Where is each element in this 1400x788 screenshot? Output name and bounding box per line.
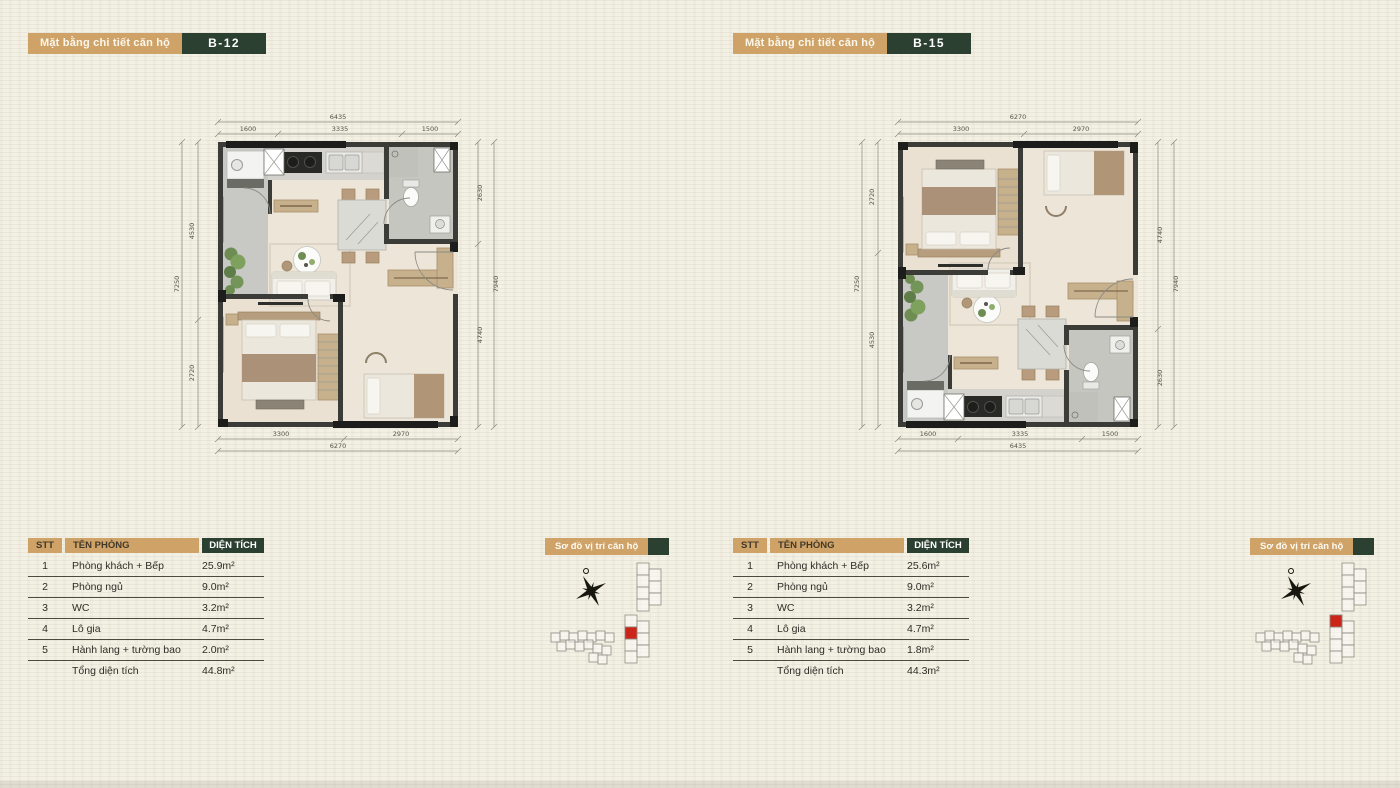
table-row: 1Phòng khách + Bếp25.6m²: [733, 556, 969, 577]
dim-label: 7940: [492, 276, 500, 293]
brochure-page: Mặt bằng chi tiết căn hộ B-12 6435 1600 …: [0, 0, 1400, 788]
dim-label: 6435: [330, 113, 347, 121]
unit-badge: B-15: [887, 33, 971, 54]
dim-label: 2720: [188, 365, 196, 382]
table-total-row: Tổng diện tích44.8m²: [28, 661, 264, 681]
dim-label: 1500: [1102, 430, 1119, 438]
dim-label: 2970: [1073, 125, 1090, 133]
col-room: TÊN PHÒNG: [65, 538, 199, 553]
panel-title: Mặt bằng chi tiết căn hộ: [28, 33, 182, 54]
page-bottom-shade: [0, 781, 1400, 788]
site-header-b12: Sơ đồ vị trí căn hộ: [545, 538, 669, 555]
panel-header-b15: Mặt bằng chi tiết căn hộ B-15: [733, 33, 971, 54]
site-title: Sơ đồ vị trí căn hộ: [545, 538, 648, 555]
dim-label: 6435: [1010, 442, 1027, 450]
dim-label: 6270: [1010, 113, 1027, 121]
table-row: 2Phòng ngủ9.0m²: [28, 577, 264, 598]
dim-label: 7250: [853, 276, 861, 293]
dim-label: 3300: [273, 430, 290, 438]
dim-label: 3335: [332, 125, 349, 133]
table-header: STT TÊN PHÒNG DIỆN TÍCH: [733, 538, 969, 553]
table-row: 3WC3.2m²: [28, 598, 264, 619]
dim-label: 4740: [476, 327, 484, 344]
col-area: DIỆN TÍCH: [202, 538, 264, 553]
table-row: 5Hành lang + tường bao1.8m²: [733, 640, 969, 661]
col-stt: STT: [28, 538, 62, 553]
table-row: 3WC3.2m²: [733, 598, 969, 619]
dim-label: 4530: [868, 332, 876, 349]
col-area: DIỆN TÍCH: [907, 538, 969, 553]
dim-label: 4530: [188, 223, 196, 240]
dim-label: 7250: [173, 276, 181, 293]
col-stt: STT: [733, 538, 767, 553]
table-row: 4Lô gia4.7m²: [28, 619, 264, 640]
table-row: 1Phòng khách + Bếp25.9m²: [28, 556, 264, 577]
dim-label: 2720: [868, 189, 876, 206]
unit-badge: B-12: [182, 33, 266, 54]
area-table-b15: STT TÊN PHÒNG DIỆN TÍCH 1Phòng khách + B…: [733, 538, 969, 681]
site-title: Sơ đồ vị trí căn hộ: [1250, 538, 1353, 555]
dim-label: 1500: [422, 125, 439, 133]
table-row: 4Lô gia4.7m²: [733, 619, 969, 640]
dim-label: 3335: [1012, 430, 1029, 438]
dim-label: 2630: [1156, 370, 1164, 387]
dim-label: 3300: [953, 125, 970, 133]
dim-label: 1600: [920, 430, 937, 438]
table-row: 5Hành lang + tường bao2.0m²: [28, 640, 264, 661]
dim-label: 2630: [476, 185, 484, 202]
table-total-row: Tổng diện tích44.3m²: [733, 661, 969, 681]
site-map-b12: [549, 559, 671, 669]
col-room: TÊN PHÒNG: [770, 538, 904, 553]
panel-header-b12: Mặt bằng chi tiết căn hộ B-12: [28, 33, 266, 54]
site-badge-square: [1353, 538, 1374, 555]
dim-label: 1600: [240, 125, 257, 133]
dim-label: 2970: [393, 430, 410, 438]
table-header: STT TÊN PHÒNG DIỆN TÍCH: [28, 538, 264, 553]
site-header-b15: Sơ đồ vị trí căn hộ: [1250, 538, 1374, 555]
highlighted-unit: [1330, 615, 1342, 627]
table-row: 2Phòng ngủ9.0m²: [733, 577, 969, 598]
floor-plan-b15: 6270 3300 2970 1600 3335 1500 6435 2720 …: [848, 108, 1188, 458]
site-badge-square: [648, 538, 669, 555]
area-table-b12: STT TÊN PHÒNG DIỆN TÍCH 1Phòng khách + B…: [28, 538, 264, 681]
dim-label: 7940: [1172, 276, 1180, 293]
panel-title: Mặt bằng chi tiết căn hộ: [733, 33, 887, 54]
dim-label: 4740: [1156, 227, 1164, 244]
highlighted-unit: [625, 627, 637, 639]
site-map-b15: [1254, 559, 1376, 669]
dim-label: 6270: [330, 442, 347, 450]
floor-plan-b12: 6435 1600 3335 1500 3300 2970 6270 4530 …: [168, 108, 508, 458]
